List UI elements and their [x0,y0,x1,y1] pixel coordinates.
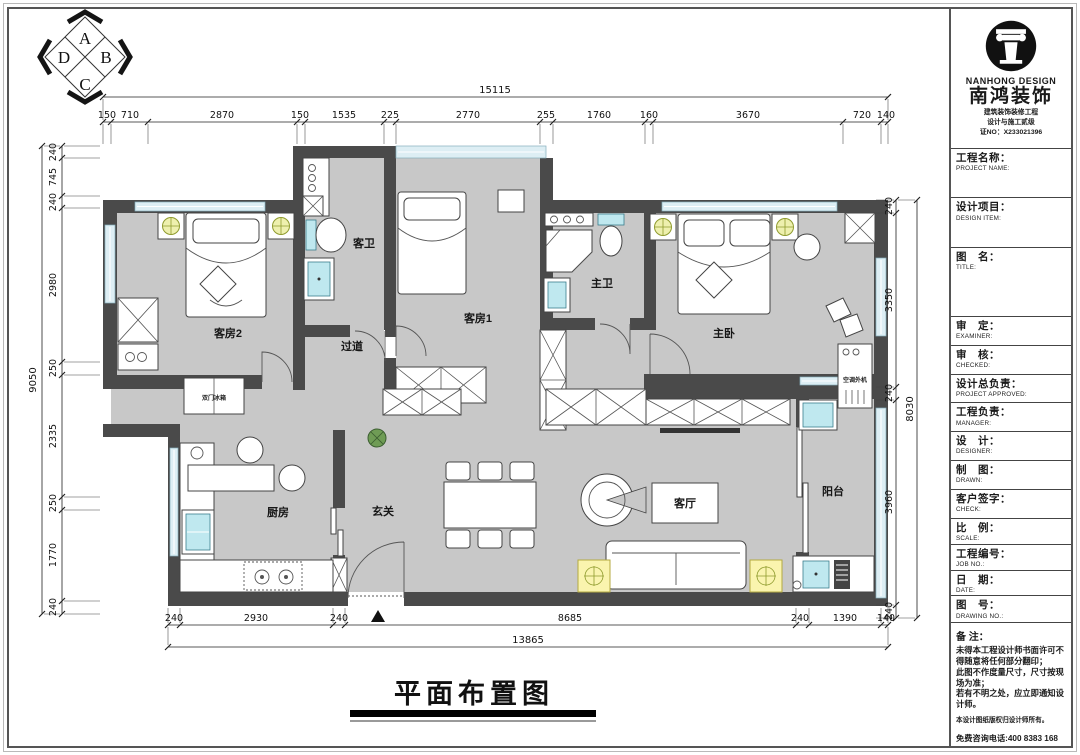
field-label-en: DESIGNER: [956,448,1066,455]
field-drawing-no: 图 号： DRAWING NO.: [951,596,1071,623]
toilet-master [600,226,622,256]
field-label-zh: 客户签字： [956,493,1066,506]
plan-title: 平面布置图 [352,672,596,711]
field-label-en: CHECKED: [956,362,1066,369]
field-label-en: EXAMINER: [956,333,1066,340]
dim-left-6: 250 [48,494,59,512]
field-label-zh: 设 计： [956,435,1066,448]
field-label-zh: 比 例： [956,522,1066,535]
chair [446,462,470,480]
room-label-corridor: 过道 [341,339,363,353]
dim-bottom-5: 1390 [833,613,857,624]
room-label-living: 客厅 [673,496,696,510]
tv [660,428,740,433]
field-label-en: DRAWING NO.: [956,613,1066,620]
dim-top-3: 150 [291,110,309,121]
room-label-guest-bath: 客卫 [352,236,375,250]
dim-top-11: 720 [853,110,871,121]
pillow [404,198,460,220]
field-designer: 设 计： DESIGNER: [951,432,1071,461]
dim-right-2: 240 [884,384,895,402]
dim-top-7: 255 [537,110,555,121]
compass-letter-b: B [100,48,111,67]
hotline: 免费咨询电话:400 8383 168 [956,732,1066,744]
dim-right-total: 8030 [905,396,916,421]
field-job-no: 工程编号： JOB NO.: [951,545,1071,571]
ac-unit: 空调外机 [838,344,872,408]
pillow [193,219,259,243]
dim-left-total: 9050 [28,367,39,392]
stool [794,234,820,260]
company-name-zh: 南鸿装饰 [969,86,1053,108]
laundry-nook [303,158,329,216]
room-label-balcony: 阳台 [822,484,844,498]
dim-bottom-0: 240 [165,613,183,624]
dim-bottom-2: 240 [330,613,348,624]
dim-bottom-4: 240 [791,613,809,624]
chair [478,530,502,548]
stool [237,437,263,463]
room-label-bedroom1: 客房1 [463,311,492,325]
field-title: 图 名： TITLE: [951,248,1071,317]
company-logo-block: NANHONG DESIGN 南鸿装饰 建筑装饰装修工程 设计与施工贰级 证NO… [951,9,1071,149]
dim-bottom-total: 13865 [512,635,544,646]
compass-letter-c: C [79,75,90,94]
company-cert-line1: 建筑装饰装修工程 [984,108,1038,118]
toilet-guest [316,218,346,252]
field-label-zh: 工程名称： [956,152,1066,165]
dim-top-2: 2870 [210,110,234,121]
field-label-zh: 图 号： [956,599,1066,612]
field-label-en: DRAWN: [956,477,1066,484]
balcony-sliding-door [797,427,802,497]
dim-top-5: 225 [381,110,399,121]
compass-symbol: A B C D [40,12,130,102]
stool [279,465,305,491]
dining-set [444,462,536,548]
dim-left-1: 745 [48,168,59,186]
compass-letter-d: D [58,48,70,67]
room-label-ac: 空调外机 [843,376,867,384]
field-label-zh: 日 期： [956,574,1066,587]
field-label-en: DESIGN ITEM: [956,215,1066,222]
company-name-en: NANHONG DESIGN [966,76,1057,86]
dim-top-1: 710 [121,110,139,121]
company-cert-no: 证NO：X233021396 [980,128,1042,138]
note-line-1: 未得本工程设计师书面许可不得随意将任何部分翻印； [956,645,1066,667]
field-checked: 审 核： CHECKED: [951,346,1071,375]
title-block: NANHONG DESIGN 南鸿装饰 建筑装饰装修工程 设计与施工贰级 证NO… [949,9,1071,746]
copyright-note: 本设计图纸版权归设计师所有。 [956,714,1066,724]
dim-left-4: 250 [48,359,59,377]
pillow [684,220,724,246]
dim-left-0: 240 [48,143,59,161]
dim-left-3: 2980 [48,273,59,297]
dim-bottom-6: 140 [877,613,895,624]
field-label-zh: 制 图： [956,464,1066,477]
chair [510,530,534,548]
dim-top-0: 150 [98,110,116,121]
field-label-zh: 审 定： [956,320,1066,333]
kitchen-peninsula [188,465,274,491]
dim-top-10: 3670 [736,110,760,121]
field-label-zh: 审 核： [956,349,1066,362]
plan-title-underline [350,710,596,717]
field-label-zh: 图 名： [956,251,1066,264]
vanity-counter [545,213,593,226]
field-customer-sign: 客户签字： CHECK: [951,490,1071,519]
dim-bottom-1: 2930 [244,613,268,624]
field-date: 日 期： DATE: [951,571,1071,597]
dim-bottom-3: 8685 [558,613,582,624]
notes-label: 备 注： [956,628,1066,643]
field-label-zh: 设计项目： [956,201,1066,214]
kitchen-counter-bottom [180,560,333,592]
dim-left-2: 240 [48,193,59,211]
dining-table [444,482,536,528]
field-project-name: 工程名称： PROJECT NAME: [951,149,1071,199]
chair [510,462,534,480]
field-label-zh: 设计总负责： [956,378,1066,391]
shelf-bedroom2 [118,344,158,370]
dim-left-8: 240 [48,598,59,616]
chair [446,530,470,548]
toilet-tank [306,220,316,250]
compass-letter-a: A [79,29,92,48]
field-label-en: PROJECT APPROVED: [956,391,1066,398]
field-label-en: MANAGER: [956,420,1066,427]
field-manager: 工程负责： MANAGER: [951,403,1071,432]
dim-top-4: 1535 [332,110,356,121]
note-line-2: 此图不作度量尺寸，尺寸按现场为准； [956,667,1066,689]
dim-top-total: 15115 [479,85,511,96]
field-examiner: 审 定： EXAMINER: [951,317,1071,346]
note-line-3: 若有不明之处，应立即通知设计师。 [956,688,1066,710]
drawing-sheet: A B C D [0,0,1080,755]
field-label-en: TITLE: [956,264,1066,271]
kitchen-sliding-door [331,508,336,534]
room-label-entry: 玄关 [372,504,394,518]
dim-left-7: 1770 [48,543,59,567]
floor-plan-drawing: A B C D [0,0,1080,755]
plan-title-underline-thin [350,720,596,722]
field-label-en: JOB NO.: [956,561,1066,568]
field-label-zh: 工程编号： [956,548,1066,561]
notes-section: 备 注： 未得本工程设计师书面许可不得随意将任何部分翻印； 此图不作度量尺寸，尺… [951,623,1071,746]
field-label-zh: 工程负责： [956,406,1066,419]
room-label-bedroom2: 客房2 [213,326,242,340]
dim-top-6: 2770 [456,110,480,121]
field-scale: 比 例： SCALE: [951,519,1071,545]
field-design-item: 设计项目： DESIGN ITEM: [951,198,1071,248]
room-label-master-bath: 主卫 [591,276,613,290]
room-label-kitchen: 厨房 [267,505,289,519]
room-label-master-bedroom: 主卧 [713,326,735,340]
entry-furniture [368,429,386,447]
field-drawn: 制 图： DRAWN: [951,461,1071,490]
dim-top-8: 1760 [587,110,611,121]
pillow [730,220,770,246]
field-label-en: CHECK: [956,506,1066,513]
dim-top-12: 140 [877,110,895,121]
company-cert-line2: 设计与施工贰级 [987,118,1035,128]
nightstand [498,190,524,212]
field-label-en: SCALE: [956,535,1066,542]
company-logo-icon [983,18,1039,74]
dim-top-9: 160 [640,110,658,121]
dim-left-5: 2335 [48,424,59,448]
entrance-marker-icon [371,610,385,622]
field-label-en: DATE: [956,587,1066,594]
field-project-approved: 设计总负责： PROJECT APPROVED: [951,375,1071,404]
field-label-en: PROJECT NAME: [956,165,1066,172]
dim-right-3: 3960 [884,490,895,514]
toilet-master-tank [598,214,624,225]
dim-right-0: 240 [884,197,895,215]
chair [478,462,502,480]
room-label-fridge: 双门冰箱 [202,394,226,402]
dim-right-1: 3350 [884,288,895,312]
